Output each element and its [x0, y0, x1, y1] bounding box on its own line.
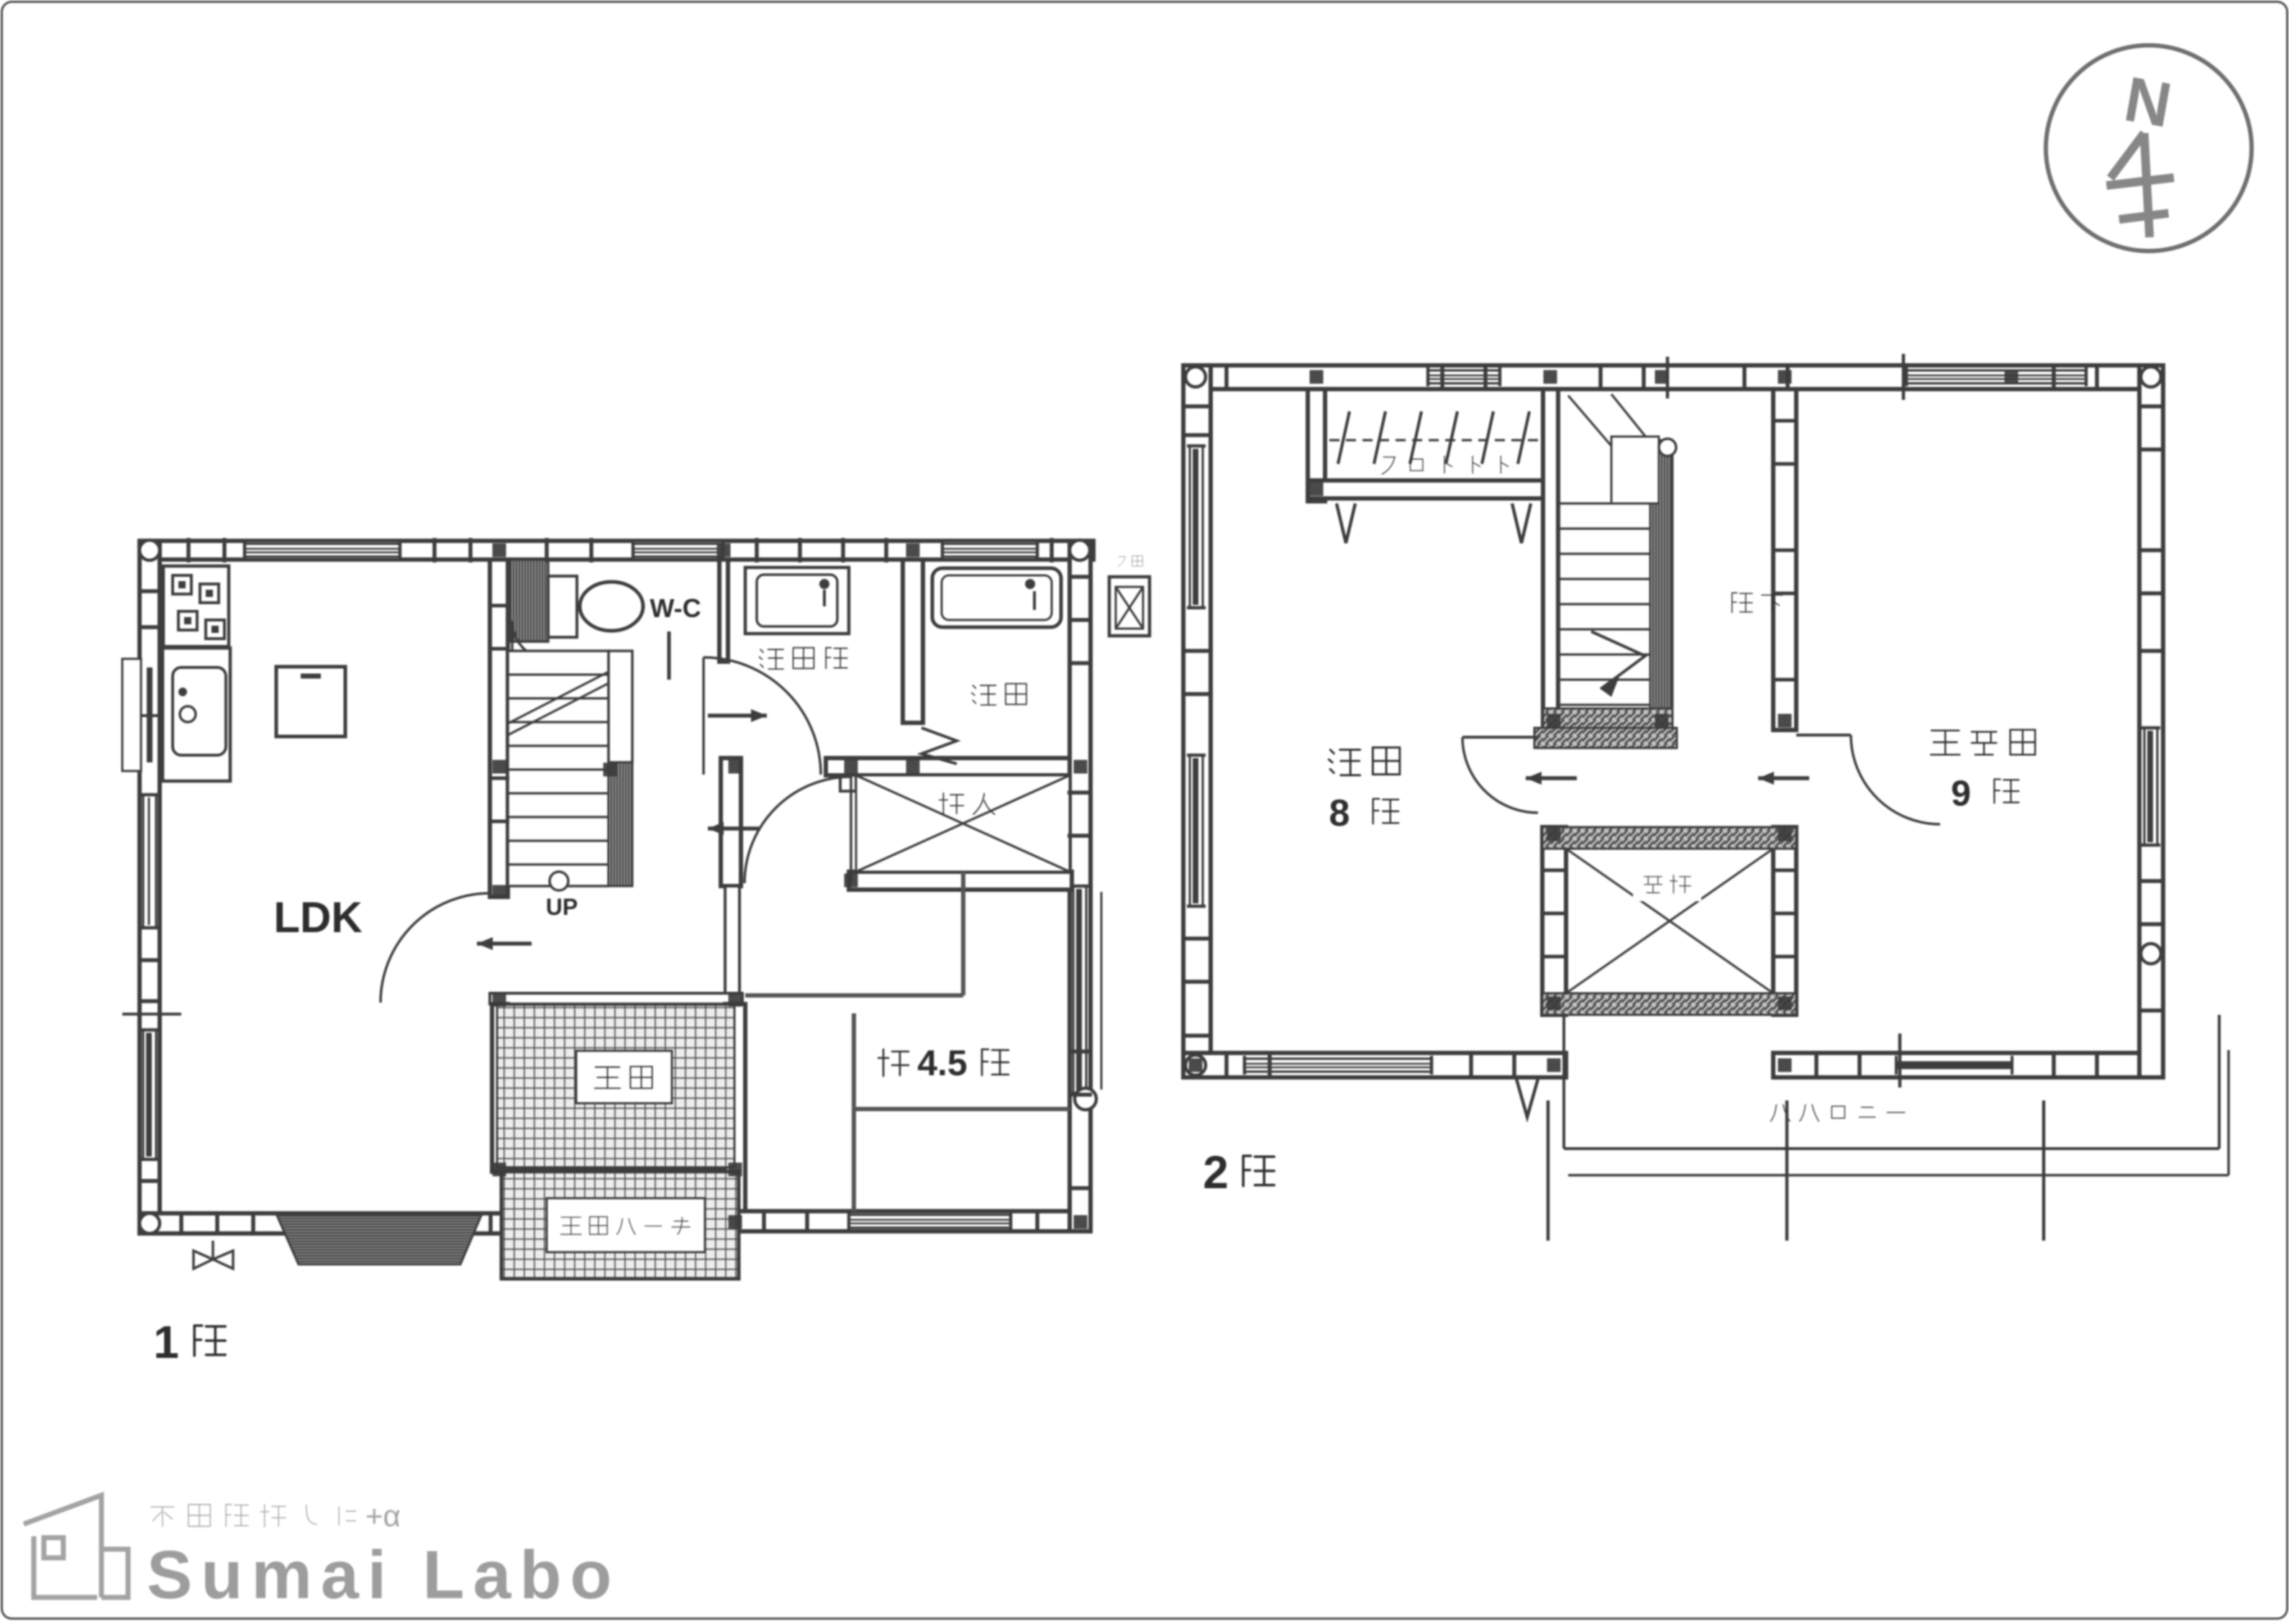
- svg-text:1: 1: [153, 1316, 179, 1368]
- svg-text:UP: UP: [546, 894, 578, 920]
- svg-text:LDK: LDK: [273, 893, 362, 941]
- svg-text:8: 8: [1329, 793, 1350, 834]
- svg-text:Sumai Labo: Sumai Labo: [147, 1537, 620, 1613]
- svg-text:W-C: W-C: [650, 593, 701, 623]
- svg-text:9: 9: [1951, 773, 1971, 813]
- svg-text:4.5: 4.5: [917, 1043, 968, 1083]
- svg-text:2: 2: [1203, 1146, 1229, 1198]
- svg-text:+α: +α: [365, 1499, 401, 1533]
